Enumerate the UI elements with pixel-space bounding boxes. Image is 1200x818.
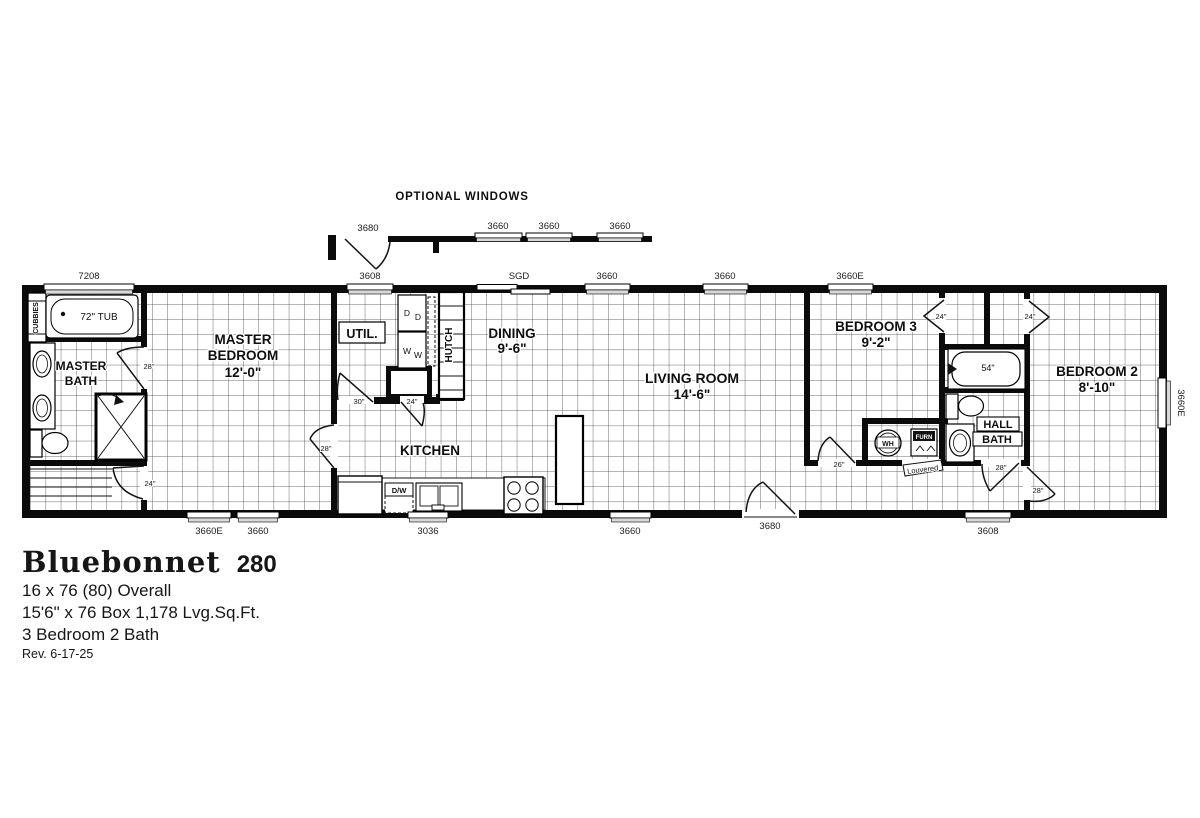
furnace-fixture: FURN xyxy=(911,429,937,456)
svg-text:24": 24" xyxy=(406,397,417,406)
dryer-label-alt: D xyxy=(415,312,421,322)
svg-text:3036: 3036 xyxy=(417,526,438,537)
dining-label: DINING xyxy=(488,326,535,341)
svg-text:24": 24" xyxy=(1024,312,1035,321)
svg-text:3660: 3660 xyxy=(247,526,268,537)
svg-text:28": 28" xyxy=(143,362,154,371)
floor-plan-svg: OPTIONAL WINDOWS 3680 3660 3660 3660 xyxy=(0,0,1200,818)
svg-text:28": 28" xyxy=(1032,486,1043,495)
hall-bath-label-box: HALL BATH xyxy=(973,417,1022,446)
optional-door-label: 3680 xyxy=(357,223,378,234)
window-3660-top-2: 3660 xyxy=(703,271,748,294)
washer-label: W xyxy=(403,346,411,356)
svg-text:3660: 3660 xyxy=(714,271,735,282)
bedroom2-label: BEDROOM 2 xyxy=(1056,364,1138,379)
master-tub-label: 72" TUB xyxy=(80,312,118,323)
svg-text:3660: 3660 xyxy=(619,526,640,537)
dishwasher-fixture: D/W xyxy=(385,483,413,513)
optional-window-3: 3660 xyxy=(597,221,643,242)
svg-text:3660E: 3660E xyxy=(836,271,863,282)
hall-bath-label-line2: BATH xyxy=(982,434,1012,446)
svg-text:7208: 7208 xyxy=(78,271,99,282)
master-bath-label-line2: BATH xyxy=(65,374,97,388)
utility-label: UTIL. xyxy=(346,327,377,341)
optional-window-3-label: 3660 xyxy=(609,221,630,232)
window-3036-bottom: 3036 xyxy=(408,512,448,537)
revision-date: Rev. 6-17-25 xyxy=(22,647,277,661)
furnace-label: FURN xyxy=(916,435,933,441)
dryer-label: D xyxy=(404,308,410,318)
svg-text:3680: 3680 xyxy=(759,521,780,532)
model-series: 280 xyxy=(237,551,277,579)
svg-text:3608: 3608 xyxy=(977,526,998,537)
optional-window-2: 3660 xyxy=(526,221,572,242)
master-vanity xyxy=(30,343,55,429)
window-3660E-right: 3660E xyxy=(1158,378,1186,428)
kitchen-label: KITCHEN xyxy=(400,443,460,458)
hall-bathtub-fixture: 54" xyxy=(948,349,1025,389)
svg-text:3660: 3660 xyxy=(596,271,617,282)
bedroom3-dim: 9'-2" xyxy=(861,335,890,350)
master-bath-label-line1: MASTER xyxy=(56,359,107,373)
hall-tub-label: 54" xyxy=(981,363,994,373)
kitchen-bar-counter xyxy=(556,416,583,504)
window-3660-top-1: 3660 xyxy=(585,271,630,294)
bedroom3-label: BEDROOM 3 xyxy=(835,319,917,334)
svg-text:28": 28" xyxy=(995,463,1006,472)
window-3660E-top: 3660E xyxy=(828,271,873,294)
hutch-cabinet: HUTCH xyxy=(439,292,464,399)
master-bathtub-fixture: 72" TUB xyxy=(46,295,138,338)
spec-rooms: 3 Bedroom 2 Bath xyxy=(22,625,277,645)
svg-text:24": 24" xyxy=(144,479,155,488)
living-room-dim: 14'-6" xyxy=(674,387,711,402)
svg-text:30": 30" xyxy=(353,397,364,406)
window-3660-bottom-1: 3660 xyxy=(237,512,279,537)
window-3660E-bottom: 3660E xyxy=(187,512,231,537)
dining-dim: 9'-6" xyxy=(497,341,526,356)
dishwasher-label: D/W xyxy=(392,486,408,495)
window-3608-bottom: 3608 xyxy=(965,512,1011,537)
optional-window-1: 3660 xyxy=(475,221,522,242)
utility-label-box: UTIL. xyxy=(339,322,385,343)
washer-label-alt: W xyxy=(414,350,422,360)
window-7208: 7208 xyxy=(44,271,134,294)
master-shower xyxy=(96,394,146,460)
cubbies-label: CUBBIES xyxy=(33,302,40,334)
window-3660-bottom-2: 3660 xyxy=(610,512,651,537)
optional-window-2-label: 3660 xyxy=(538,221,559,232)
svg-text:SGD: SGD xyxy=(509,271,530,282)
spec-overall: 16 x 76 (80) Overall xyxy=(22,581,277,601)
hutch-label: HUTCH xyxy=(444,328,455,363)
window-3608-top: 3608 xyxy=(347,271,393,294)
optional-windows-heading: OPTIONAL WINDOWS xyxy=(395,191,528,203)
optional-window-1-label: 3660 xyxy=(487,221,508,232)
master-bedroom-label-line2: BEDROOM xyxy=(208,348,279,363)
svg-text:24": 24" xyxy=(935,312,946,321)
spec-box: 15'6" x 76 Box 1,178 Lvg.Sq.Ft. xyxy=(22,603,277,623)
hall-bath-label-line1: HALL xyxy=(983,419,1013,431)
refrigerator xyxy=(338,476,382,514)
bedroom2-dim: 8'-10" xyxy=(1079,380,1116,395)
svg-text:3608: 3608 xyxy=(359,271,380,282)
model-name: Bluebonnet xyxy=(22,545,221,579)
optional-wall-corner xyxy=(328,235,336,260)
water-heater-fixture: WH xyxy=(875,430,901,456)
svg-text:3660E: 3660E xyxy=(195,526,222,537)
optional-windows-detail: OPTIONAL WINDOWS 3680 3660 3660 3660 xyxy=(328,191,652,269)
hall-vanity xyxy=(946,424,974,462)
master-bedroom-label-line1: MASTER xyxy=(215,332,272,347)
svg-text:26": 26" xyxy=(833,460,844,469)
kitchen-sink xyxy=(416,483,462,511)
cubbies-shelf: CUBBIES xyxy=(28,293,46,342)
optional-entry-door: 3680 xyxy=(345,223,390,269)
optional-wall-tick xyxy=(433,242,439,253)
svg-text:3660E: 3660E xyxy=(1175,389,1186,416)
range-stove xyxy=(504,477,543,514)
floor-plan-page: OPTIONAL WINDOWS 3680 3660 3660 3660 xyxy=(0,0,1200,818)
floor-grid xyxy=(28,291,1161,512)
living-room-label: LIVING ROOM xyxy=(645,370,739,386)
master-bedroom-dim: 12'-0" xyxy=(225,365,262,380)
water-heater-label: WH xyxy=(882,441,894,448)
svg-text:28": 28" xyxy=(320,444,331,453)
title-block: Bluebonnet 280 16 x 76 (80) Overall 15'6… xyxy=(22,545,277,661)
